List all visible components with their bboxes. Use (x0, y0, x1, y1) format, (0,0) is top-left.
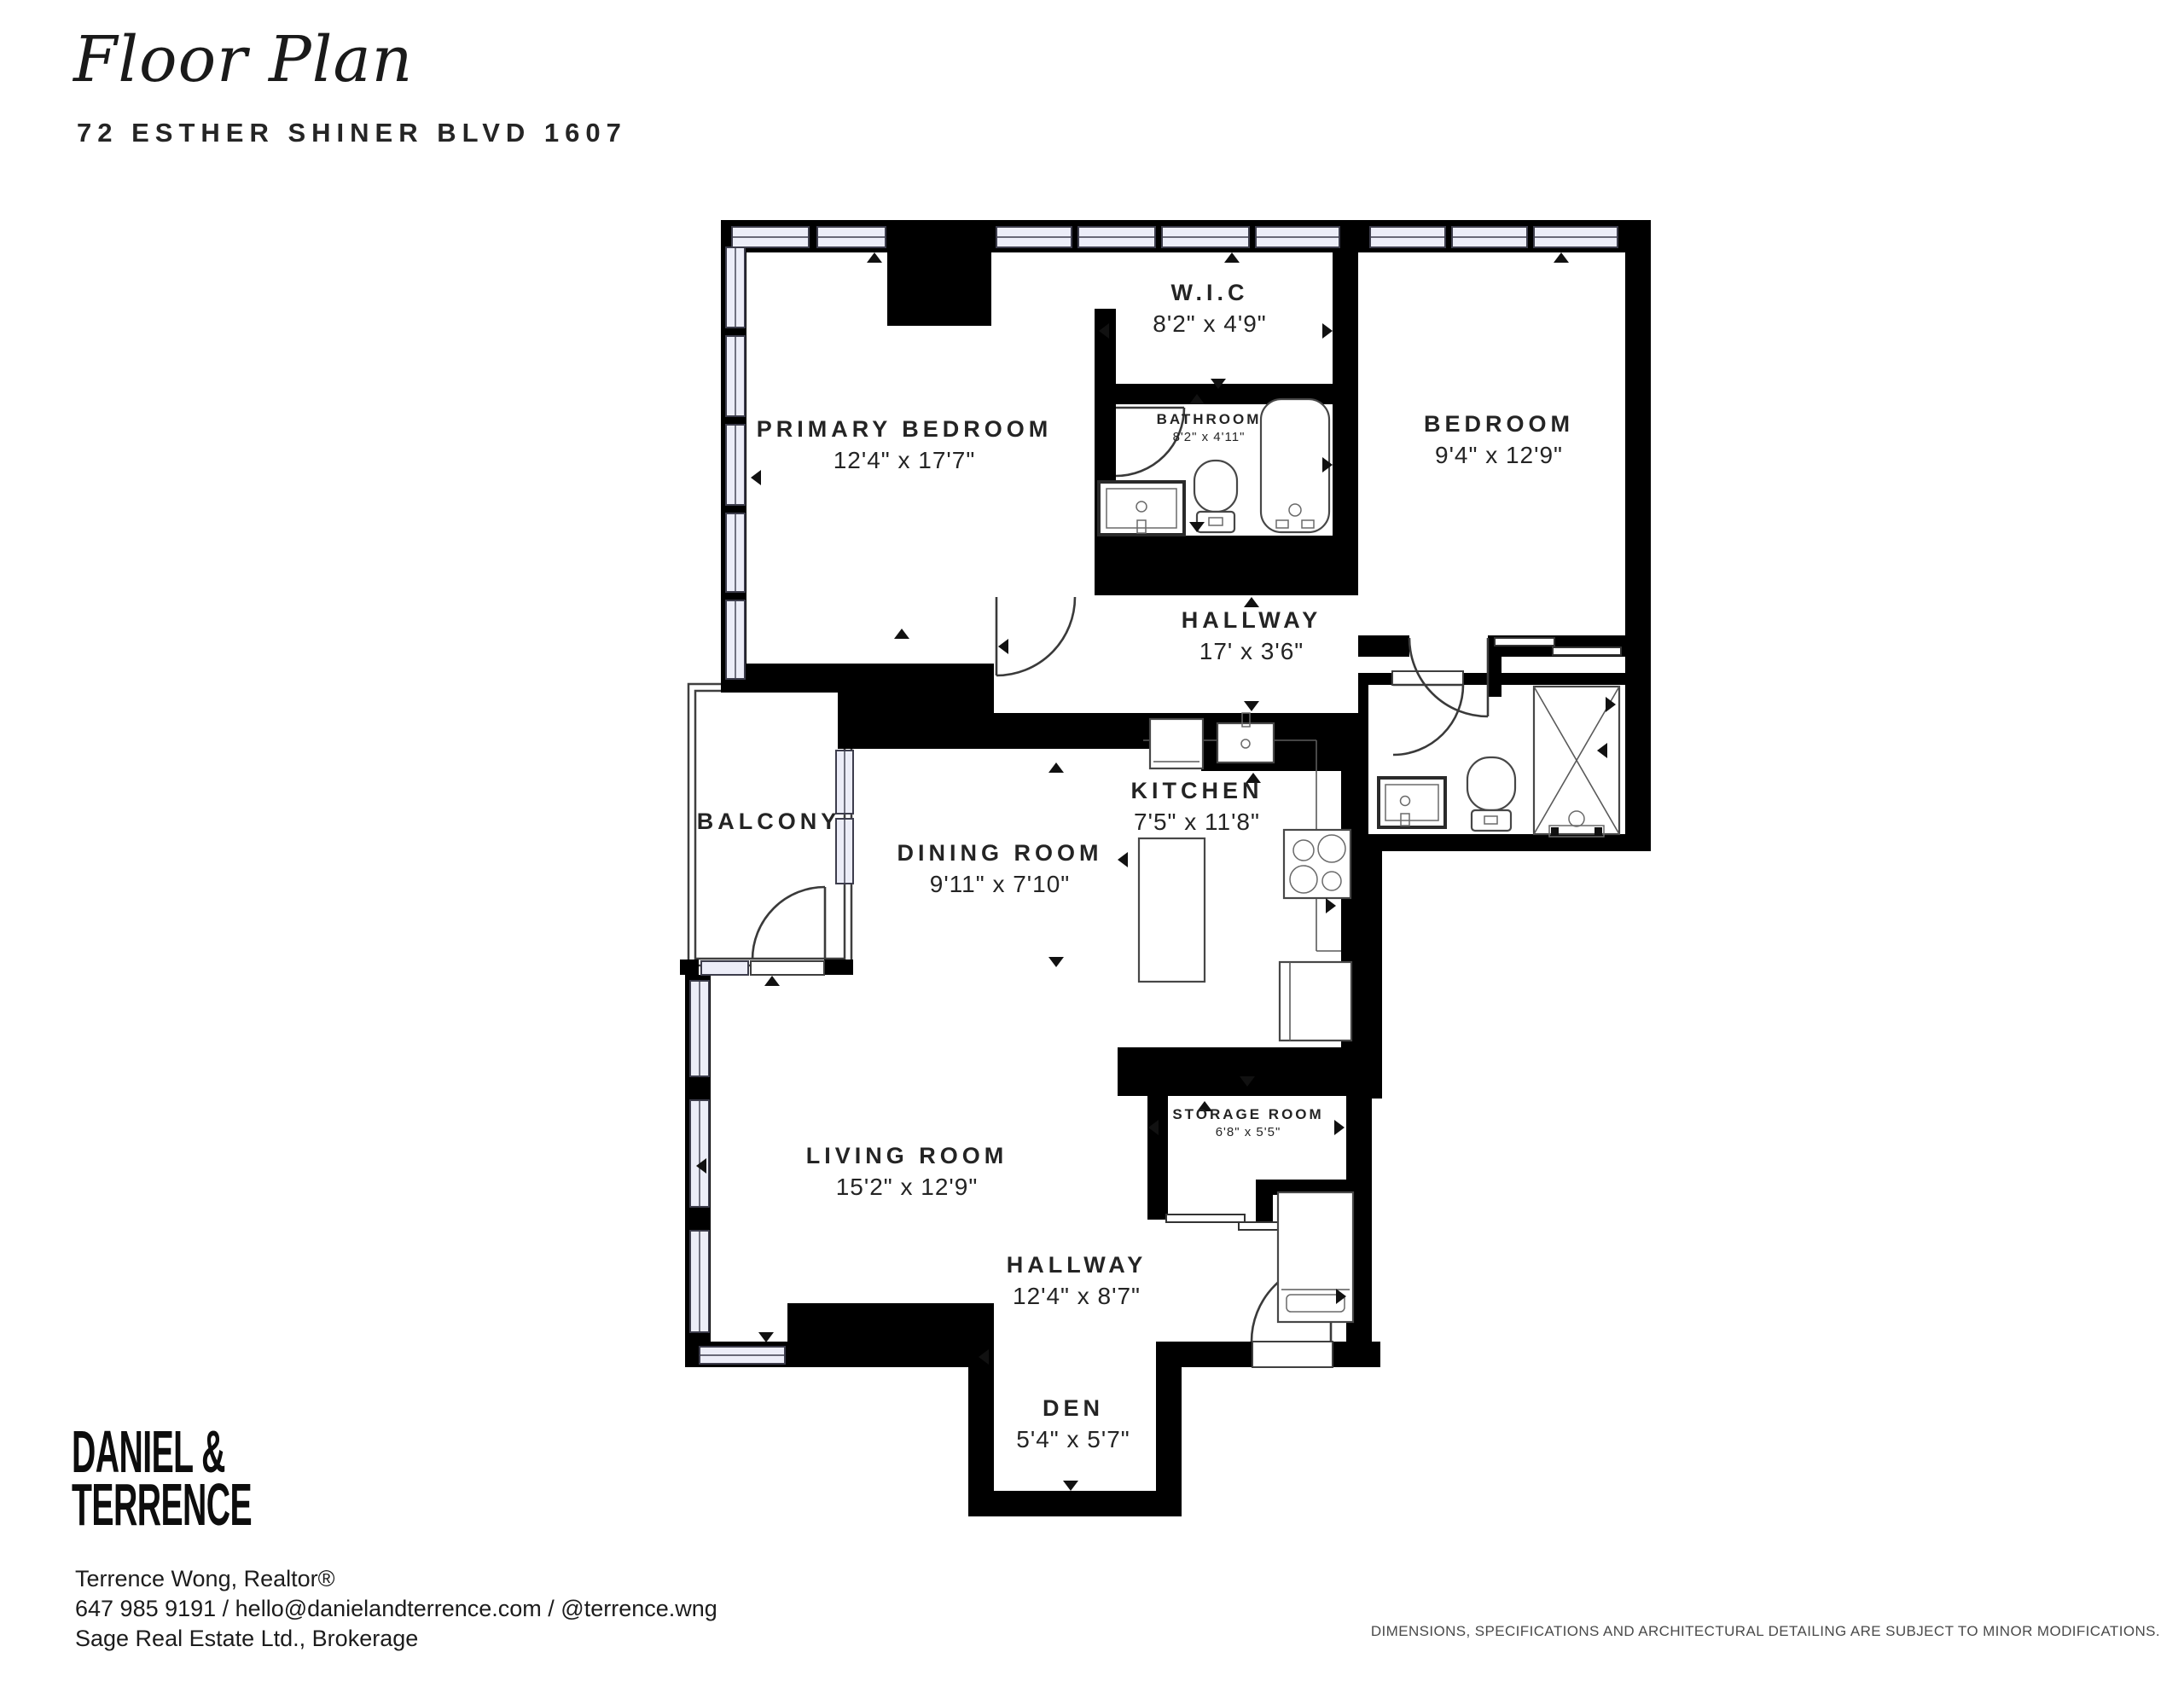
room-name: BATHROOM (1157, 411, 1262, 428)
second-bathroom-fixtures (1379, 687, 1619, 837)
agent-contact: 647 985 9191 / hello@danielandterrence.c… (75, 1596, 717, 1622)
floor-plan-page: Floor Plan 72 ESTHER SHINER BLVD 1607 (0, 0, 2184, 1687)
brand-logo-line2: TERRENCE (72, 1479, 252, 1532)
room-label-den: DEN 5'4" x 5'7" (1016, 1395, 1130, 1453)
room-dims: 5'4" x 5'7" (1016, 1426, 1130, 1453)
room-label-primary-bedroom: PRIMARY BEDROOM 12'4" x 17'7" (757, 416, 1053, 474)
brand-logo: DANIEL & TERRENCE (72, 1426, 252, 1531)
room-dims: 9'11" x 7'10" (897, 871, 1103, 898)
room-label-balcony: BALCONY (697, 809, 841, 835)
room-dims: 12'4" x 8'7" (1007, 1283, 1147, 1310)
room-dims: 6'8" x 5'5" (1172, 1125, 1323, 1139)
room-dims: 8'2" x 4'11" (1157, 430, 1262, 444)
disclaimer-text: DIMENSIONS, SPECIFICATIONS AND ARCHITECT… (1371, 1623, 2160, 1640)
brokerage-name: Sage Real Estate Ltd., Brokerage (75, 1626, 418, 1652)
room-label-bathroom: BATHROOM 8'2" x 4'11" (1157, 411, 1262, 444)
room-dims: 9'4" x 12'9" (1424, 442, 1574, 469)
room-label-living-room: LIVING ROOM 15'2" x 12'9" (806, 1143, 1008, 1201)
room-name: HALLWAY (1007, 1252, 1147, 1278)
room-name: DINING ROOM (897, 840, 1103, 867)
room-label-kitchen: KITCHEN 7'5" x 11'8" (1131, 778, 1263, 836)
room-name: W.I.C (1153, 280, 1266, 306)
room-name: HALLWAY (1182, 607, 1322, 634)
room-name: KITCHEN (1131, 778, 1263, 804)
room-label-wic: W.I.C 8'2" x 4'9" (1153, 280, 1266, 338)
room-label-hallway-upper: HALLWAY 17' x 3'6" (1182, 607, 1322, 665)
room-name: BEDROOM (1424, 411, 1574, 438)
room-dims: 7'5" x 11'8" (1131, 809, 1263, 836)
room-label-dining-room: DINING ROOM 9'11" x 7'10" (897, 840, 1103, 898)
room-label-storage-room: STORAGE ROOM 6'8" x 5'5" (1172, 1106, 1323, 1139)
room-name: DEN (1016, 1395, 1130, 1422)
room-name: STORAGE ROOM (1172, 1106, 1323, 1123)
room-dims: 8'2" x 4'9" (1153, 310, 1266, 338)
room-name: LIVING ROOM (806, 1143, 1008, 1169)
agent-name: Terrence Wong, Realtor® (75, 1566, 335, 1592)
room-name: PRIMARY BEDROOM (757, 416, 1053, 443)
room-label-bedroom: BEDROOM 9'4" x 12'9" (1424, 411, 1574, 469)
room-label-hallway-lower: HALLWAY 12'4" x 8'7" (1007, 1252, 1147, 1310)
room-dims: 17' x 3'6" (1182, 638, 1322, 665)
room-name: BALCONY (697, 809, 841, 835)
room-dims: 15'2" x 12'9" (806, 1174, 1008, 1201)
room-dims: 12'4" x 17'7" (757, 447, 1053, 474)
